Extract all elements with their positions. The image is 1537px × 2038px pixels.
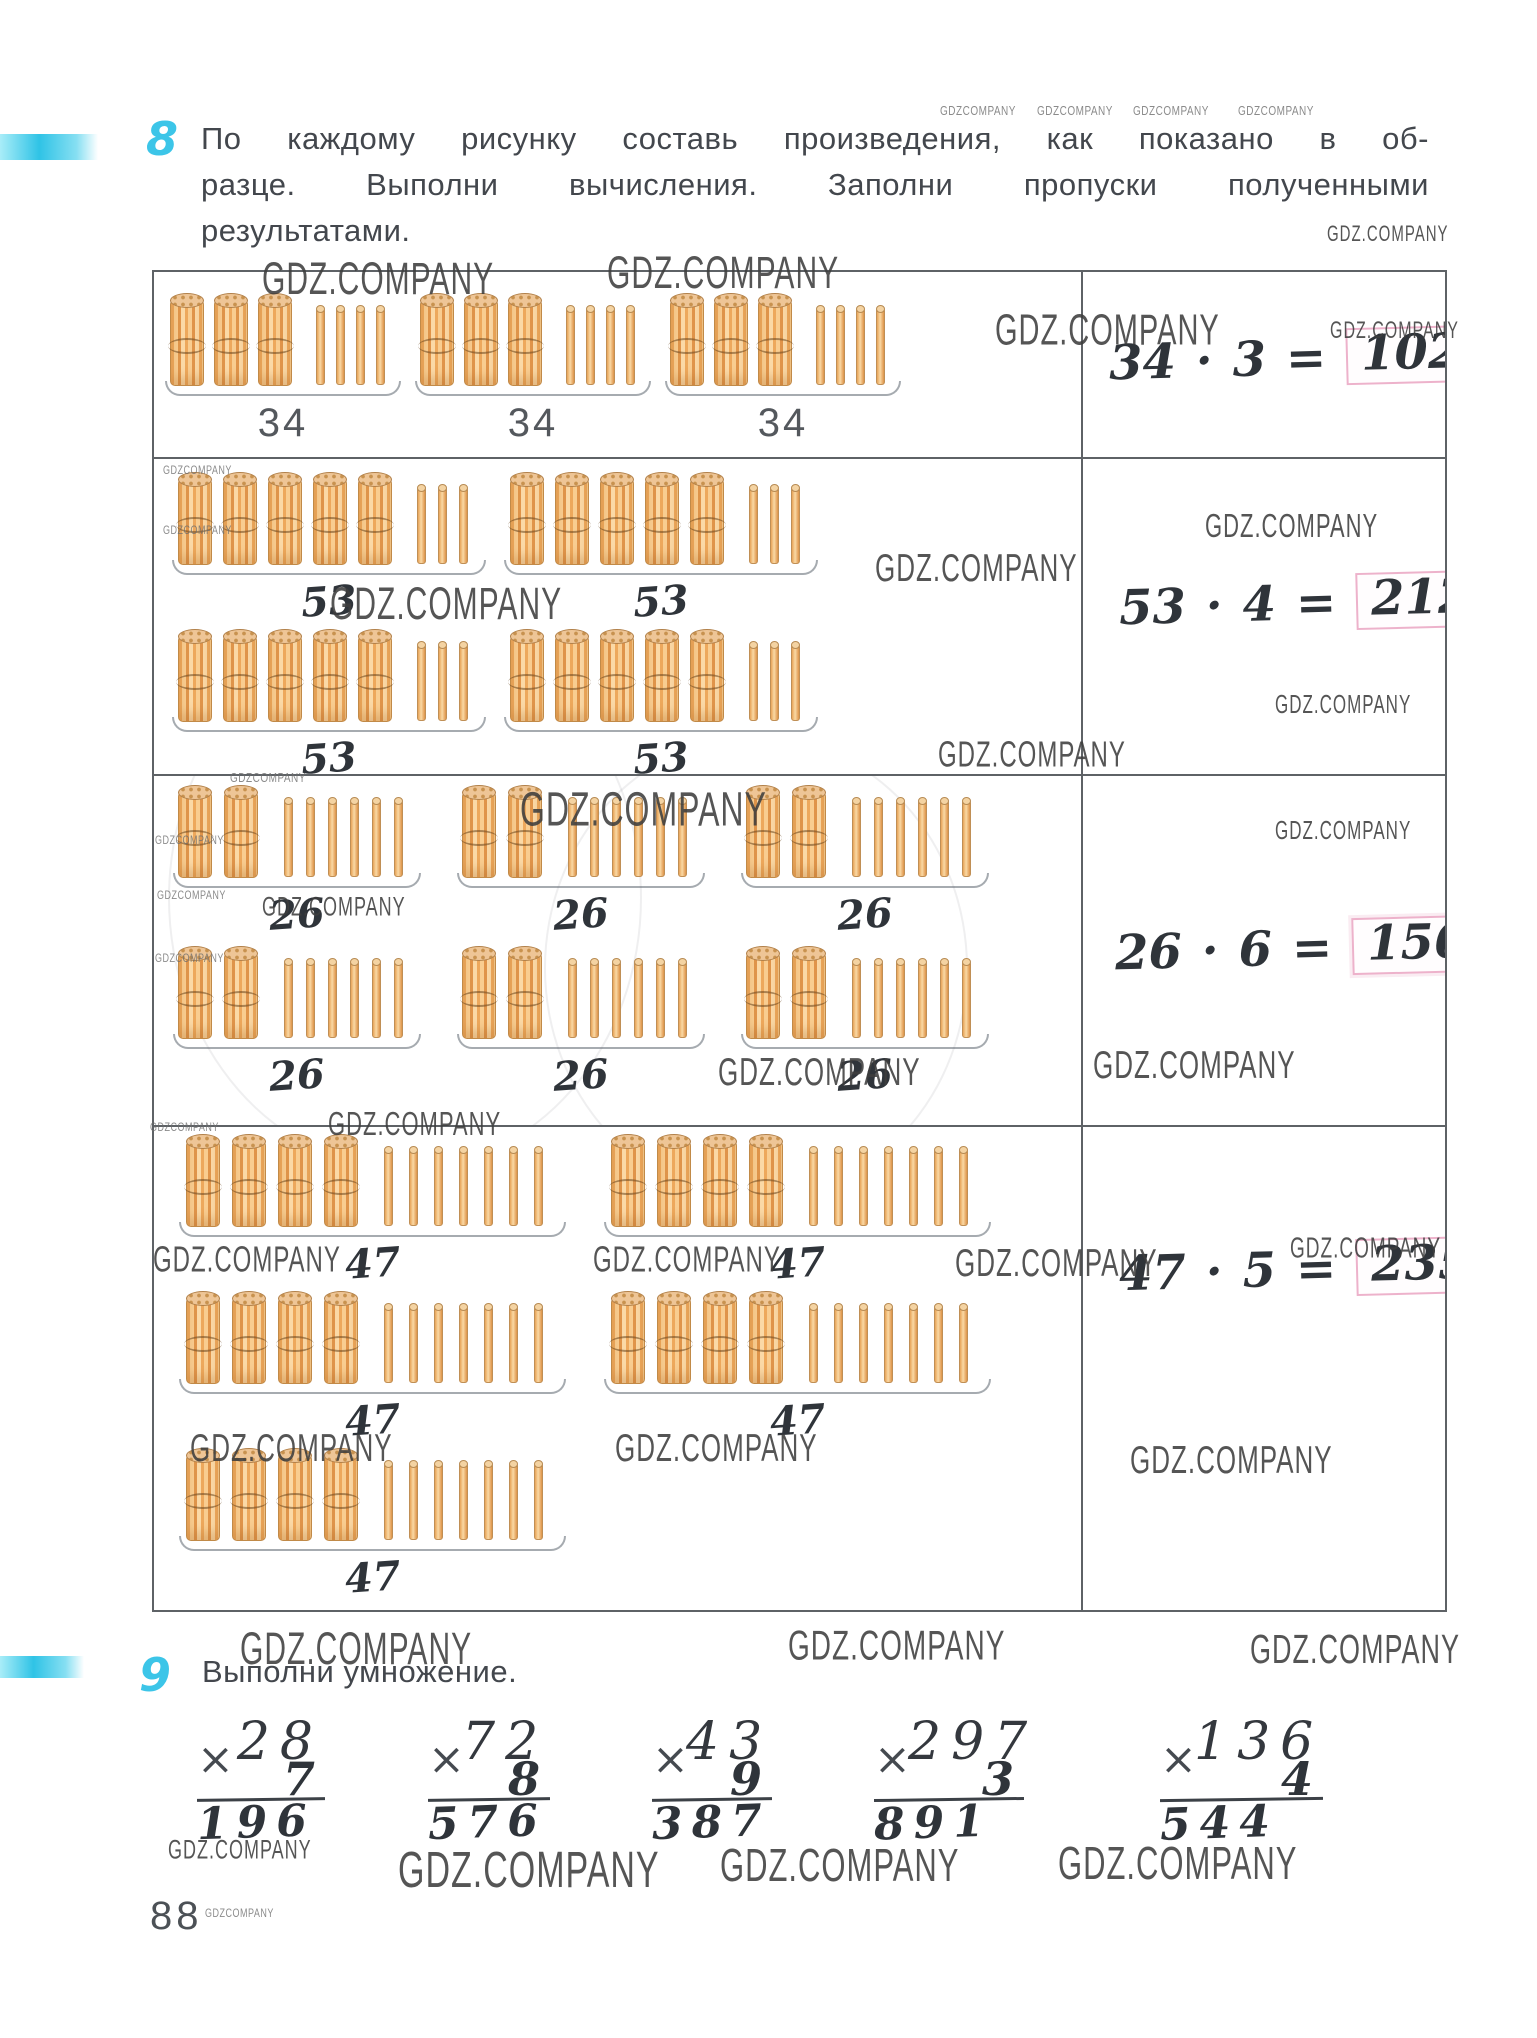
stick-area: 53535353: [178, 477, 1081, 776]
single-stick: [856, 307, 865, 385]
single-stick: [417, 643, 426, 721]
stick-bundle-of-ten: [358, 634, 392, 722]
stick-bundle-of-ten: [186, 1139, 220, 1227]
group-label: 53: [632, 578, 691, 626]
single-sticks: [749, 643, 812, 721]
mult-problem-2: × 72 8 576: [428, 1716, 550, 1845]
single-stick: [874, 799, 883, 877]
exercise8-number: 8: [146, 116, 178, 162]
watermark-text: GDZ.COMPANY: [328, 1108, 501, 1141]
watermark-text: GDZCOMPANY: [1238, 106, 1314, 119]
stick-line: 4747: [186, 1296, 1081, 1443]
stick-bundle-of-ten: [462, 790, 496, 878]
single-stick: [306, 799, 315, 877]
single-stick: [459, 1462, 468, 1540]
single-stick: [328, 799, 337, 877]
single-stick: [459, 643, 468, 721]
stick-bundle-of-ten: [703, 1139, 737, 1227]
single-stick: [634, 960, 643, 1038]
single-sticks: [852, 960, 984, 1038]
watermark-text: GDZ.COMPANY: [720, 1842, 960, 1889]
sticks: [186, 1139, 559, 1227]
single-sticks: [384, 1148, 559, 1226]
watermark-text: GDZ.COMPANY: [262, 893, 406, 920]
stick-bundle-of-ten: [792, 790, 826, 878]
workbook-page: 8 По каждому рисунку составь произведени…: [0, 0, 1537, 2038]
stick-line: 262626: [178, 951, 1081, 1098]
single-stick: [834, 1148, 843, 1226]
product: 576: [427, 1799, 550, 1847]
single-stick: [417, 486, 426, 564]
dot-operator: ·: [1201, 926, 1219, 974]
single-sticks: [816, 307, 896, 385]
stick-bundle-of-ten: [232, 1296, 266, 1384]
equals-sign: =: [1285, 333, 1326, 382]
single-stick: [434, 1305, 443, 1383]
stick-bundle-of-ten: [324, 1296, 358, 1384]
stick-bundle-of-ten: [358, 477, 392, 565]
single-stick: [940, 960, 949, 1038]
single-stick: [749, 643, 758, 721]
single-stick: [859, 1305, 868, 1383]
exercise8-instruction: По каждому рисунку составь произведения,…: [201, 116, 1429, 254]
single-stick: [409, 1462, 418, 1540]
sticks: [178, 477, 480, 565]
single-stick: [376, 307, 385, 385]
instruction-line: результатами.: [201, 208, 1429, 254]
single-stick: [934, 1305, 943, 1383]
multiplier: 3: [1232, 335, 1267, 384]
stick-bundle-of-ten: [232, 1139, 266, 1227]
group-label: 47: [343, 1240, 402, 1288]
sticks: [611, 1139, 984, 1227]
single-stick: [384, 1305, 393, 1383]
mult-problem-5: × 136 4 544: [1160, 1716, 1323, 1845]
page-number: 88: [150, 1894, 203, 1939]
stick-bundle-of-ten: [508, 951, 542, 1039]
watermark-text: GDZCOMPANY: [940, 106, 1016, 119]
group-label: 26: [836, 891, 895, 939]
watermark-text: GDZ.COMPANY: [330, 583, 562, 628]
sticks: [178, 634, 480, 722]
group-label: 34: [758, 401, 809, 445]
exercise8-table: 343434 34 · 3 = 102 53535353 53 · 4 = 21…: [152, 270, 1447, 1612]
single-stick: [606, 307, 615, 385]
single-stick: [384, 1462, 393, 1540]
group-label: 26: [552, 891, 611, 939]
single-stick: [350, 799, 359, 877]
accent-bar-top: [0, 134, 98, 160]
stick-bundle-of-ten: [178, 634, 212, 722]
single-stick: [809, 1148, 818, 1226]
watermark-text: GDZ.COMPANY: [995, 310, 1220, 354]
stick-bundle-of-ten: [268, 477, 302, 565]
stick-bundle-of-ten: [268, 634, 302, 722]
stick-bundle-of-ten: [749, 1139, 783, 1227]
single-sticks: [417, 486, 480, 564]
single-stick: [809, 1305, 818, 1383]
stick-bundle-of-ten: [657, 1296, 691, 1384]
single-sticks: [568, 960, 700, 1038]
stick-line: 343434: [170, 298, 1081, 445]
mult-problem-1: × 28 7 196: [197, 1716, 325, 1845]
times-sign: ×: [652, 1738, 689, 1782]
stick-bundle-of-ten: [749, 1296, 783, 1384]
stick-bundle-of-ten: [714, 298, 748, 386]
single-sticks: [316, 307, 396, 385]
stick-bundle-of-ten: [508, 298, 542, 386]
sticks: [462, 951, 700, 1039]
stick-bundle-of-ten: [510, 477, 544, 565]
stick-group-26: 26: [462, 951, 700, 1098]
single-stick: [909, 1148, 918, 1226]
single-stick: [438, 486, 447, 564]
single-stick: [934, 1148, 943, 1226]
group-label: 53: [300, 735, 359, 776]
stick-bundle-of-ten: [178, 477, 212, 565]
stick-bundle-of-ten: [703, 1296, 737, 1384]
answer-box: 212: [1355, 570, 1445, 630]
sticks: [510, 477, 812, 565]
stick-bundle-of-ten: [670, 298, 704, 386]
single-sticks: [809, 1148, 984, 1226]
instruction-line: разце. Выполни вычисления. Заполни пропу…: [201, 162, 1429, 208]
stick-group-47: 47: [611, 1296, 984, 1443]
stick-bundle-of-ten: [746, 951, 780, 1039]
single-stick: [962, 960, 971, 1038]
watermark-text: GDZCOMPANY: [1037, 106, 1113, 119]
single-stick: [770, 643, 779, 721]
multiplier: 5: [1242, 1246, 1277, 1295]
stick-group-34: 34: [170, 298, 396, 445]
multiplier: 4: [1242, 580, 1277, 629]
stick-bundle-of-ten: [690, 477, 724, 565]
watermark-text: GDZCOMPANY: [163, 465, 232, 477]
watermark-text: GDZ.COMPANY: [615, 1428, 818, 1467]
stick-bundle-of-ten: [645, 477, 679, 565]
watermark-text: GDZ.COMPANY: [1093, 1045, 1296, 1084]
stick-area: 262626262626: [178, 790, 1081, 1098]
stick-bundle-of-ten: [278, 1139, 312, 1227]
single-stick: [484, 1462, 493, 1540]
single-stick: [959, 1148, 968, 1226]
watermark-text: GDZ.COMPANY: [1250, 1630, 1460, 1671]
watermark-text: GDZ.COMPANY: [788, 1625, 1005, 1667]
watermark-text: GDZ.COMPANY: [1275, 692, 1411, 718]
single-stick: [284, 799, 293, 877]
watermark-text: GDZ.COMPANY: [593, 1243, 781, 1279]
times-sign: ×: [428, 1738, 465, 1782]
single-stick: [484, 1305, 493, 1383]
single-stick: [612, 960, 621, 1038]
times-sign: ×: [1160, 1738, 1197, 1782]
single-sticks: [284, 799, 416, 877]
single-stick: [284, 960, 293, 1038]
sticks: [746, 951, 984, 1039]
single-stick: [918, 799, 927, 877]
watermark-text: GDZ.COMPANY: [1330, 320, 1459, 344]
single-stick: [834, 1305, 843, 1383]
single-stick: [534, 1148, 543, 1226]
single-stick: [770, 486, 779, 564]
single-stick: [884, 1148, 893, 1226]
single-stick: [852, 960, 861, 1038]
single-sticks: [284, 960, 416, 1038]
stick-cell-53: 53535353: [154, 459, 1083, 776]
watermark-text: GDZCOMPANY: [230, 773, 306, 786]
instruction-line: По каждому рисунку составь произведения,…: [201, 116, 1429, 162]
exercise9-number: 9: [139, 1652, 171, 1698]
single-sticks: [749, 486, 812, 564]
single-stick: [509, 1148, 518, 1226]
stick-bundle-of-ten: [464, 298, 498, 386]
group-label: 26: [268, 1052, 327, 1100]
single-stick: [336, 307, 345, 385]
dot-operator: ·: [1205, 581, 1223, 629]
stick-group-47: 47: [186, 1453, 559, 1600]
single-stick: [316, 307, 325, 385]
stick-bundle-of-ten: [313, 634, 347, 722]
single-stick: [372, 799, 381, 877]
stick-area: 4747474747: [186, 1139, 1081, 1600]
single-stick: [909, 1305, 918, 1383]
single-stick: [884, 1305, 893, 1383]
product: 156: [1366, 913, 1445, 972]
single-stick: [959, 1305, 968, 1383]
single-stick: [434, 1148, 443, 1226]
sticks: [420, 298, 646, 386]
watermark-text: GDZ.COMPANY: [1327, 223, 1449, 246]
stick-bundle-of-ten: [600, 634, 634, 722]
group-label: 26: [552, 1052, 611, 1100]
stick-bundle-of-ten: [510, 634, 544, 722]
single-stick: [306, 960, 315, 1038]
multiplier: 6: [1238, 925, 1273, 974]
single-stick: [434, 1462, 443, 1540]
watermark-text: GDZCOMPANY: [150, 1122, 219, 1134]
single-stick: [459, 486, 468, 564]
watermark-text: GDZCOMPANY: [1133, 106, 1209, 119]
stick-bundle-of-ten: [420, 298, 454, 386]
single-stick: [836, 307, 845, 385]
sticks: [670, 298, 896, 386]
mult-problem-4: × 297 3 891: [874, 1716, 1024, 1845]
single-stick: [626, 307, 635, 385]
stick-bundle-of-ten: [278, 1296, 312, 1384]
stick-bundle-of-ten: [223, 634, 257, 722]
watermark-text: GDZ.COMPANY: [938, 738, 1126, 774]
single-stick: [859, 1148, 868, 1226]
stick-bundle-of-ten: [611, 1139, 645, 1227]
single-stick: [568, 960, 577, 1038]
stick-bundle-of-ten: [555, 634, 589, 722]
times-sign: ×: [197, 1738, 234, 1782]
single-stick: [534, 1462, 543, 1540]
single-stick: [940, 799, 949, 877]
stick-group-34: 34: [670, 298, 896, 445]
stick-bundle-of-ten: [258, 298, 292, 386]
single-sticks: [417, 643, 480, 721]
single-stick: [459, 1305, 468, 1383]
watermark-text: GDZ.COMPANY: [262, 258, 494, 303]
watermark-text: GDZ.COMPANY: [1058, 1840, 1298, 1887]
mult-problem-3: × 43 9 387: [652, 1716, 772, 1845]
stick-group-26: 26: [178, 951, 416, 1098]
stick-bundle-of-ten: [224, 790, 258, 878]
watermark-text: GDZ.COMPANY: [153, 1243, 341, 1279]
single-stick: [586, 307, 595, 385]
single-stick: [678, 960, 687, 1038]
single-stick: [791, 486, 800, 564]
single-stick: [896, 799, 905, 877]
single-stick: [409, 1148, 418, 1226]
single-stick: [816, 307, 825, 385]
stick-bundle-of-ten: [313, 477, 347, 565]
stick-group-53: 53: [510, 634, 812, 776]
watermark-text: GDZ.COMPANY: [168, 1836, 312, 1863]
single-stick: [791, 643, 800, 721]
single-sticks: [809, 1305, 984, 1383]
stick-bundle-of-ten: [214, 298, 248, 386]
watermark-text: GDZCOMPANY: [155, 953, 224, 965]
single-stick: [350, 960, 359, 1038]
equation-53x4: 53 · 4 = 212: [1118, 571, 1445, 637]
watermark-text: GDZ.COMPANY: [875, 548, 1078, 587]
stick-bundle-of-ten: [555, 477, 589, 565]
sticks: [611, 1296, 984, 1384]
watermark-text: GDZ.COMPANY: [190, 1428, 393, 1467]
stick-bundle-of-ten: [462, 951, 496, 1039]
single-sticks: [852, 799, 984, 877]
stick-bundle-of-ten: [758, 298, 792, 386]
stick-cell-47: 4747474747: [154, 1127, 1083, 1610]
watermark-text: GDZCOMPANY: [205, 1908, 274, 1920]
group-label: 47: [343, 1554, 402, 1602]
single-sticks: [384, 1462, 559, 1540]
sticks: [170, 298, 396, 386]
group-label: 53: [632, 735, 691, 776]
stick-group-47: 47: [186, 1296, 559, 1443]
watermark-text: GDZCOMPANY: [155, 835, 224, 847]
sticks: [746, 790, 984, 878]
product: 212: [1370, 568, 1445, 627]
stick-group-53: 53: [178, 634, 480, 776]
stick-bundle-of-ten: [186, 1296, 220, 1384]
watermark-text: GDZ.COMPANY: [718, 1052, 921, 1091]
single-stick: [852, 799, 861, 877]
single-stick: [328, 960, 337, 1038]
stick-line: 47: [186, 1453, 1081, 1600]
sticks: [186, 1296, 559, 1384]
answer-box: 156: [1351, 915, 1445, 975]
equation-26x6: 26 · 6 = 156: [1114, 916, 1445, 982]
single-stick: [896, 960, 905, 1038]
single-stick: [484, 1148, 493, 1226]
stick-bundle-of-ten: [224, 951, 258, 1039]
single-stick: [876, 307, 885, 385]
multiplicand: 53: [1118, 582, 1186, 632]
equals-sign: =: [1291, 923, 1332, 972]
single-stick: [356, 307, 365, 385]
single-sticks: [566, 307, 646, 385]
single-stick: [384, 1148, 393, 1226]
watermark-text: GDZ.COMPANY: [520, 785, 767, 833]
stick-bundle-of-ten: [792, 951, 826, 1039]
watermark-text: GDZ.COMPANY: [607, 252, 839, 297]
watermark-text: GDZ.COMPANY: [1130, 1440, 1333, 1479]
stick-bundle-of-ten: [600, 477, 634, 565]
accent-bar-exercise9: [0, 1656, 84, 1678]
watermark-text: GDZ.COMPANY: [240, 1628, 472, 1673]
single-stick: [438, 643, 447, 721]
equals-sign: =: [1295, 578, 1336, 627]
single-stick: [394, 960, 403, 1038]
single-sticks: [384, 1305, 559, 1383]
equation-cell-34: 34 · 3 = 102: [1083, 272, 1445, 459]
stick-bundle-of-ten: [645, 634, 679, 722]
times-sign: ×: [874, 1738, 911, 1782]
dot-operator: ·: [1205, 1247, 1223, 1295]
stick-group-26: 26: [746, 790, 984, 937]
group-label: 34: [508, 401, 559, 445]
single-stick: [962, 799, 971, 877]
single-stick: [566, 307, 575, 385]
single-stick: [409, 1305, 418, 1383]
multiplicand: 26: [1114, 927, 1182, 977]
stick-bundle-of-ten: [657, 1139, 691, 1227]
stick-area: 343434: [170, 298, 1081, 445]
equation-cell-47: 47 · 5 = 235: [1083, 1127, 1445, 1610]
single-stick: [590, 960, 599, 1038]
stick-bundle-of-ten: [223, 477, 257, 565]
stick-group-34: 34: [420, 298, 646, 445]
watermark-text: GDZCOMPANY: [163, 525, 232, 537]
stick-bundle-of-ten: [611, 1296, 645, 1384]
stick-bundle-of-ten: [690, 634, 724, 722]
single-stick: [918, 960, 927, 1038]
watermark-text: GDZ.COMPANY: [398, 1845, 660, 1896]
single-stick: [509, 1462, 518, 1540]
sticks: [510, 634, 812, 722]
watermark-text: GDZ.COMPANY: [955, 1243, 1158, 1282]
group-label: 34: [258, 401, 309, 445]
single-stick: [656, 960, 665, 1038]
watermark-text: GDZ.COMPANY: [1205, 510, 1378, 543]
single-stick: [749, 486, 758, 564]
stick-bundle-of-ten: [170, 298, 204, 386]
single-stick: [874, 960, 883, 1038]
watermark-text: GDZ.COMPANY: [1290, 1235, 1441, 1264]
single-stick: [394, 799, 403, 877]
single-stick: [459, 1148, 468, 1226]
watermark-text: GDZ.COMPANY: [1275, 818, 1411, 844]
single-stick: [509, 1305, 518, 1383]
single-stick: [534, 1305, 543, 1383]
single-stick: [372, 960, 381, 1038]
stick-bundle-of-ten: [324, 1139, 358, 1227]
watermark-text: GDZCOMPANY: [157, 890, 226, 902]
